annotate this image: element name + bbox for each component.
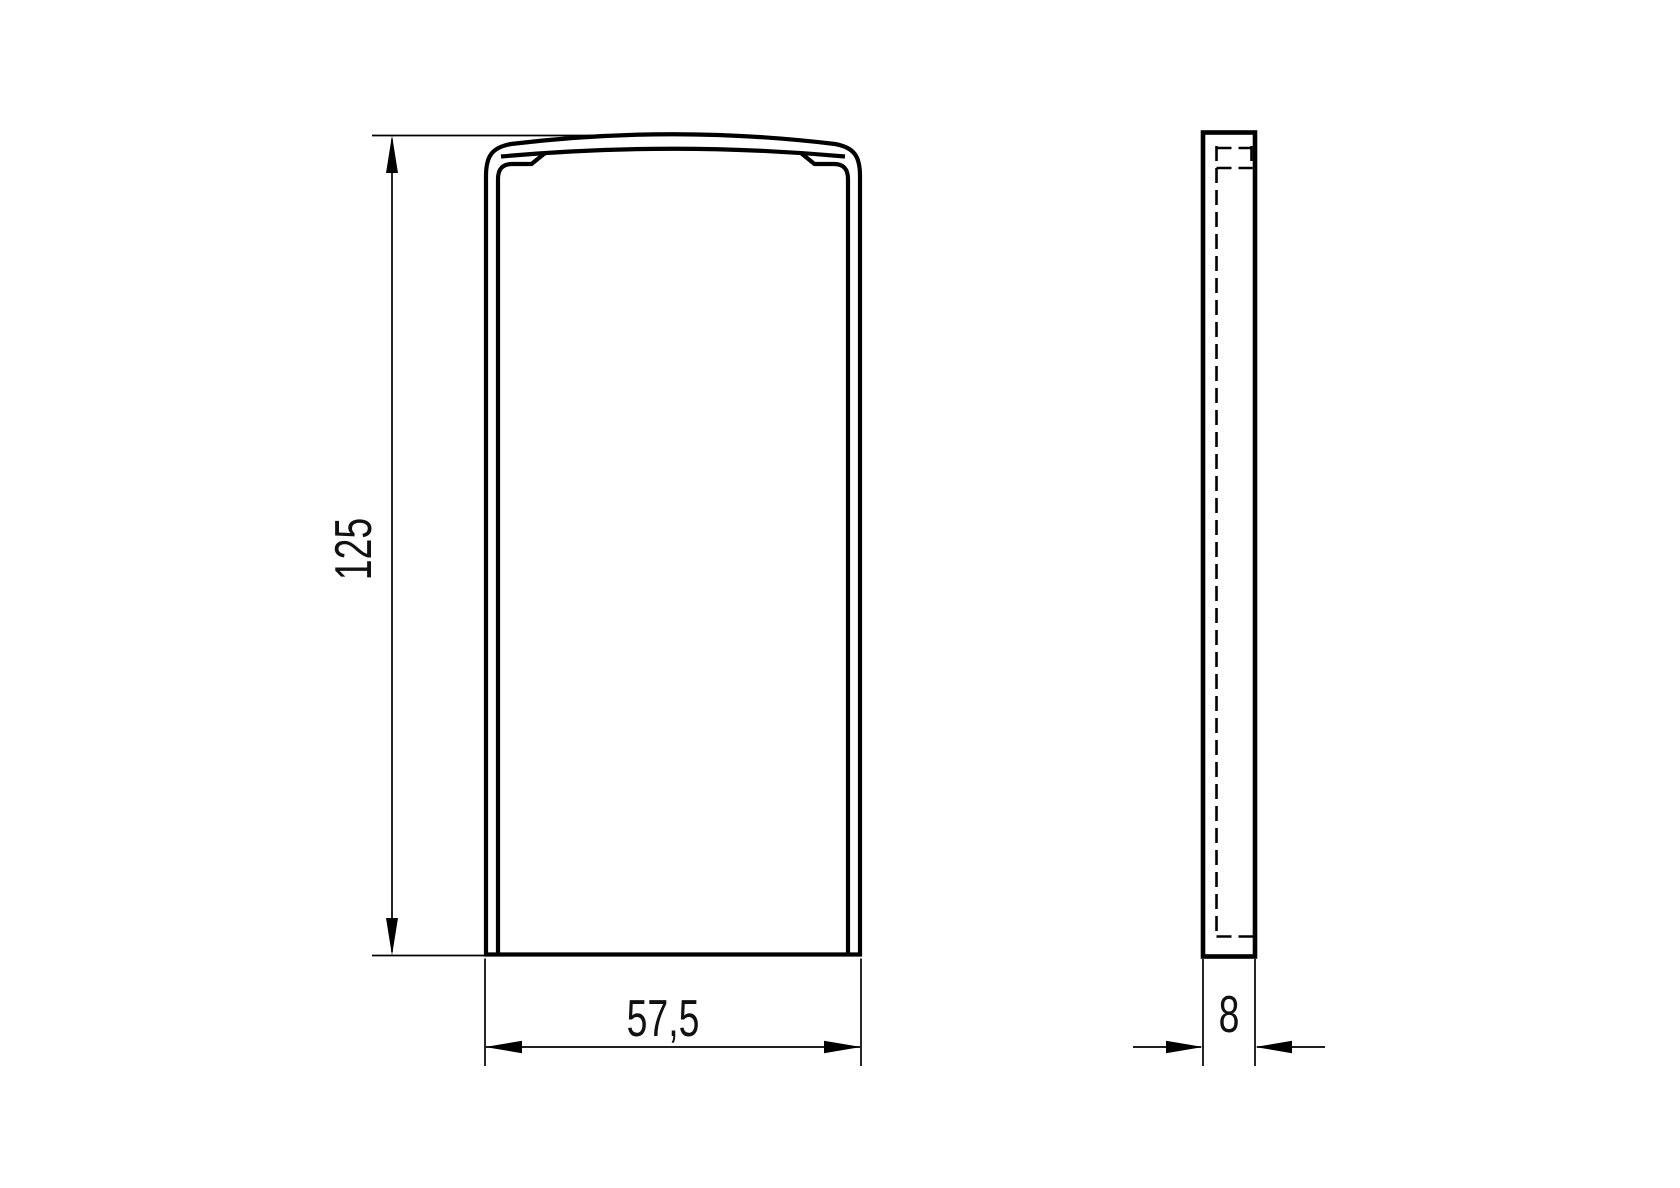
thickness-dimension: 8: [1133, 959, 1325, 1066]
drawing-canvas: 125 57,5 8: [0, 0, 1680, 1188]
height-dimension-label: 125: [324, 518, 383, 580]
side-view: [1203, 133, 1255, 957]
front-view: [486, 134, 860, 954]
side-outline: [1203, 133, 1255, 957]
width-dimension-label: 57,5: [627, 989, 700, 1048]
technical-drawing-svg: 125 57,5 8: [0, 0, 1680, 1188]
height-arrowhead-down: [386, 918, 398, 956]
width-dimension: 57,5: [485, 959, 861, 1067]
front-outer-contour: [486, 134, 860, 954]
width-arrowhead-left: [485, 1041, 522, 1053]
thickness-arrowhead-right: [1255, 1041, 1292, 1053]
thickness-dimension-label: 8: [1219, 985, 1240, 1044]
height-arrowhead-up: [386, 136, 398, 174]
thickness-arrowhead-left: [1166, 1041, 1203, 1053]
width-arrowhead-right: [824, 1041, 861, 1053]
